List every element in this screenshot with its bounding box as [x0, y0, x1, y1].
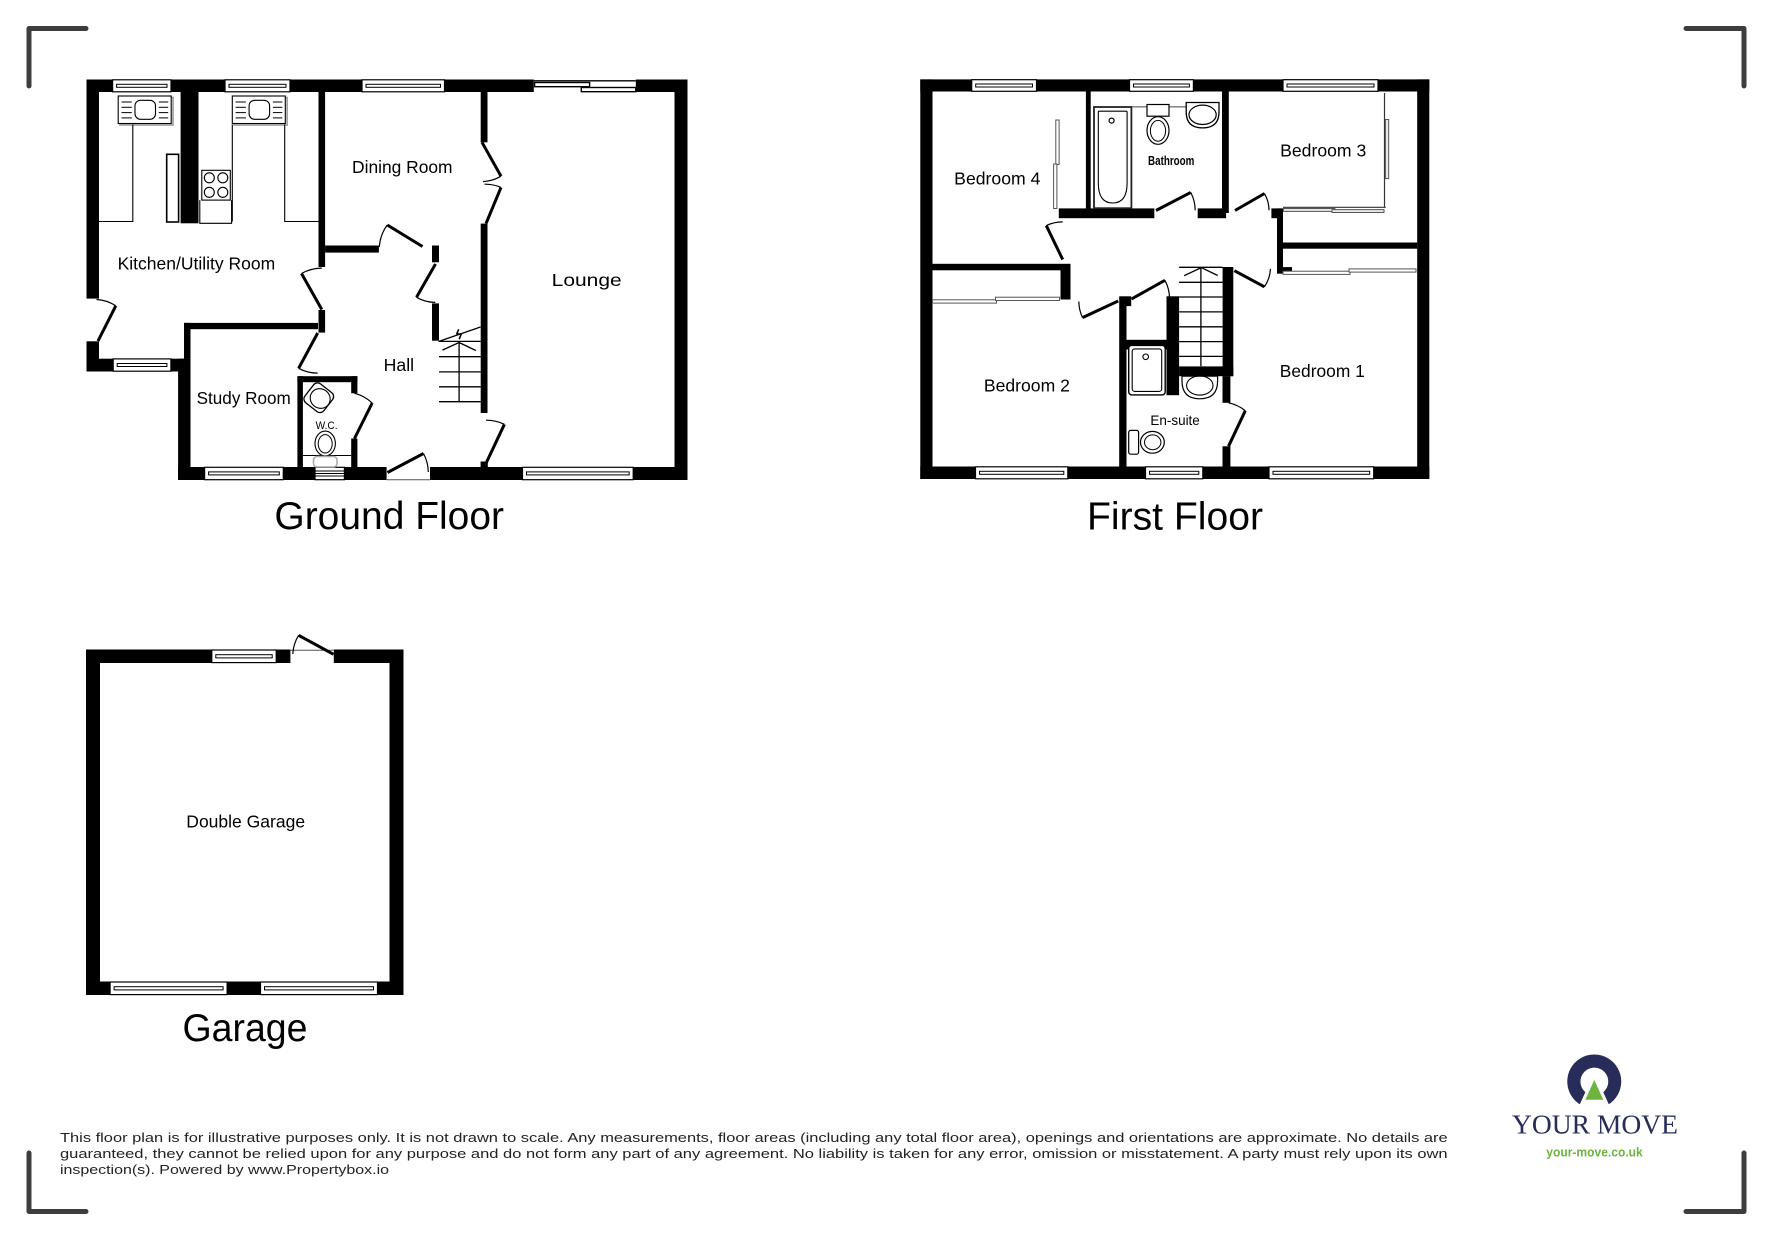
- svg-text:Bedroom 4: Bedroom 4: [954, 168, 1040, 188]
- svg-text:Study Room: Study Room: [197, 388, 291, 408]
- svg-text:guaranteed, they cannot be rel: guaranteed, they cannot be relied upon f…: [60, 1146, 1448, 1161]
- svg-text:Bedroom 3: Bedroom 3: [1280, 140, 1366, 160]
- svg-text:Garage: Garage: [183, 1007, 308, 1050]
- svg-text:This floor plan is for illustr: This floor plan is for illustrative purp…: [60, 1130, 1448, 1145]
- svg-text:First Floor: First Floor: [1087, 495, 1263, 538]
- svg-text:Bedroom 2: Bedroom 2: [984, 376, 1070, 396]
- svg-text:inspection(s). Powered by www.: inspection(s). Powered by www.Propertybo…: [60, 1162, 389, 1177]
- svg-text:your-move.co.uk: your-move.co.uk: [1546, 1146, 1643, 1160]
- svg-text:Ground Floor: Ground Floor: [274, 495, 504, 538]
- svg-text:Bathroom: Bathroom: [1148, 154, 1194, 168]
- svg-text:Dining Room: Dining Room: [352, 157, 453, 177]
- svg-text:Double Garage: Double Garage: [186, 812, 305, 832]
- svg-text:Hall: Hall: [384, 355, 414, 375]
- svg-text:En-suite: En-suite: [1150, 412, 1200, 428]
- svg-text:Bedroom 1: Bedroom 1: [1280, 361, 1365, 381]
- svg-text:Kitchen/Utility Room: Kitchen/Utility Room: [118, 253, 276, 273]
- svg-text:W.C.: W.C.: [316, 420, 338, 432]
- svg-text:YOUR MOVE: YOUR MOVE: [1512, 1110, 1678, 1140]
- svg-text:Lounge: Lounge: [552, 270, 622, 290]
